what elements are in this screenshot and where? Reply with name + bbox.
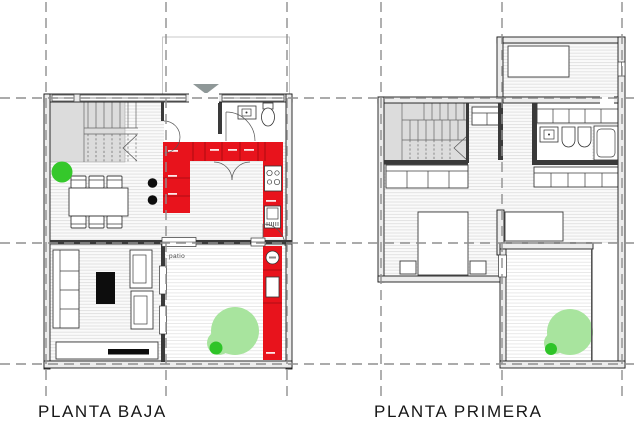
wardrobe-bedroom-c-top [537, 103, 618, 123]
entrance-canopy [163, 37, 290, 95]
oven [265, 206, 281, 228]
floor-plan-drawing: patio [0, 0, 640, 425]
cooktop [265, 166, 282, 191]
sofa [53, 250, 79, 328]
title-planta-baja: PLANTA BAJA [38, 402, 167, 422]
indoor-plant [52, 162, 73, 183]
dining-table [69, 188, 128, 216]
outdoor-sink [266, 251, 279, 264]
coffee-table [96, 272, 115, 304]
staircase-first [384, 103, 468, 162]
terrace-tree-trunk [545, 343, 557, 355]
title-planta-primera: PLANTA PRIMERA [374, 402, 543, 422]
patio-counter-unit [266, 277, 279, 297]
wardrobe-bedroom-b [386, 165, 468, 188]
bed-bedroom-a [508, 46, 569, 77]
landing-closet [472, 107, 502, 125]
toilet [262, 108, 275, 126]
bed-bedroom-c [505, 212, 563, 241]
dining-table-set [69, 176, 128, 228]
bidet [578, 127, 591, 147]
floor-plan-canvas: patio [0, 0, 640, 425]
patio-tree-trunk [210, 342, 223, 355]
wardrobe-bedroom-c-mid [534, 167, 618, 187]
toilet [562, 127, 575, 147]
patio-label: patio [169, 253, 185, 260]
staircase-ground [50, 101, 138, 162]
nightstand [400, 261, 416, 274]
column [148, 178, 158, 188]
nightstand [470, 261, 486, 274]
column [148, 195, 158, 205]
plan-planta-baja: patio [44, 37, 292, 369]
tv [108, 349, 149, 355]
